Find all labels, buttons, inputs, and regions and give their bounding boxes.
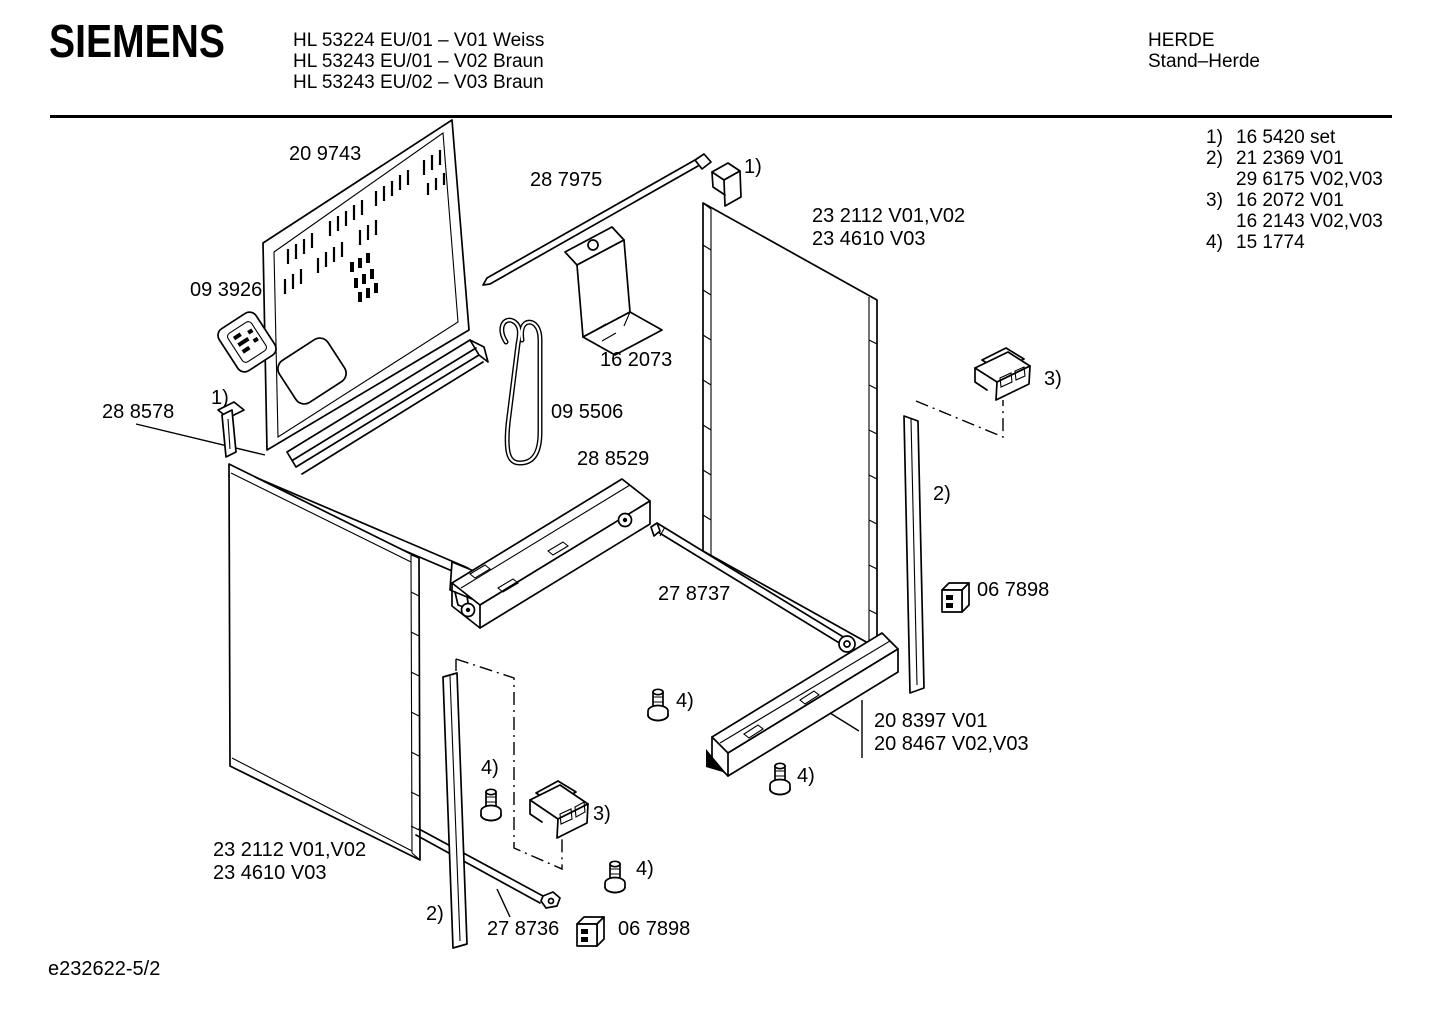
part-label-cross-rail-right: 27 8737 — [658, 583, 730, 605]
connector-front-drawing — [530, 781, 588, 838]
ref-marker-screw-a: 4) — [676, 690, 694, 712]
document-number: e232622-5/2 — [48, 958, 160, 981]
clip-right-drawing — [942, 583, 969, 612]
trim-strip-right-drawing — [904, 416, 924, 693]
part-label-line: 20 8467 V02,V03 — [874, 733, 1029, 756]
support-rail-drawing — [452, 479, 650, 628]
ref-marker-strip-right: 2) — [933, 483, 951, 505]
fixing-clip-leader — [136, 424, 265, 455]
screw-c-drawing — [481, 789, 501, 820]
back-panel-drawing — [263, 120, 469, 450]
ref-marker-clip-top: 1) — [744, 156, 762, 178]
clip-front-drawing — [577, 917, 604, 946]
part-label-line: 23 4610 V03 — [812, 228, 965, 251]
part-label-clip-front: 06 7898 — [618, 918, 690, 940]
part-label-side-panel-right: 23 2112 V01,V02 23 4610 V03 — [812, 205, 965, 251]
part-label-bracket: 16 2073 — [600, 349, 672, 371]
screw-a-drawing — [648, 689, 668, 720]
part-label-clip-right: 06 7898 — [977, 579, 1049, 601]
ref-marker-strip-front: 2) — [426, 903, 444, 925]
part-label-side-panel-left: 23 2112 V01,V02 23 4610 V03 — [213, 839, 366, 885]
alignment-line-front — [456, 659, 562, 869]
part-label-terminal-block: 09 3926 — [190, 279, 262, 301]
clip-top-drawing — [712, 163, 741, 206]
part-label-cross-rail-front: 27 8736 — [487, 918, 559, 940]
ref-marker-screw-d: 4) — [636, 858, 654, 880]
part-label-line: 23 4610 V03 — [213, 862, 366, 885]
ref-marker-screw-b: 4) — [797, 765, 815, 787]
part-label-line: 23 2112 V01,V02 — [213, 839, 366, 862]
part-label-line: 23 2112 V01,V02 — [812, 205, 965, 228]
part-label-support-rail: 28 8529 — [577, 448, 649, 470]
part-label-cable-clamp: 09 5506 — [551, 401, 623, 423]
side-panel-left-drawing — [229, 464, 420, 860]
alignment-line-right — [916, 400, 1003, 437]
cable-clamp-drawing — [502, 320, 540, 463]
screw-d-drawing — [605, 861, 625, 892]
bracket-drawing — [565, 227, 662, 355]
parts-catalog-page: { "header": { "brand": "SIEMENS", "model… — [0, 0, 1442, 1019]
part-label-line: 20 8397 V01 — [874, 710, 1029, 733]
part-label-base-rail: 20 8397 V01 20 8467 V02,V03 — [874, 710, 1029, 756]
connector-right-drawing — [975, 348, 1030, 400]
part-label-top-rail: 28 7975 — [530, 169, 602, 191]
base-rail-drawing — [706, 633, 898, 776]
part-label-fixing-clip: 28 8578 — [102, 401, 174, 423]
ref-marker-connector-front: 3) — [593, 803, 611, 825]
screw-b-drawing — [770, 763, 790, 794]
trim-strip-front-drawing — [443, 673, 467, 948]
part-label-back-panel: 20 9743 — [289, 143, 361, 165]
ref-marker-screw-c: 4) — [481, 757, 499, 779]
ref-marker-clip-left: 1) — [211, 387, 229, 409]
side-panel-right-drawing — [703, 203, 877, 648]
ref-marker-connector-right: 3) — [1044, 368, 1062, 390]
